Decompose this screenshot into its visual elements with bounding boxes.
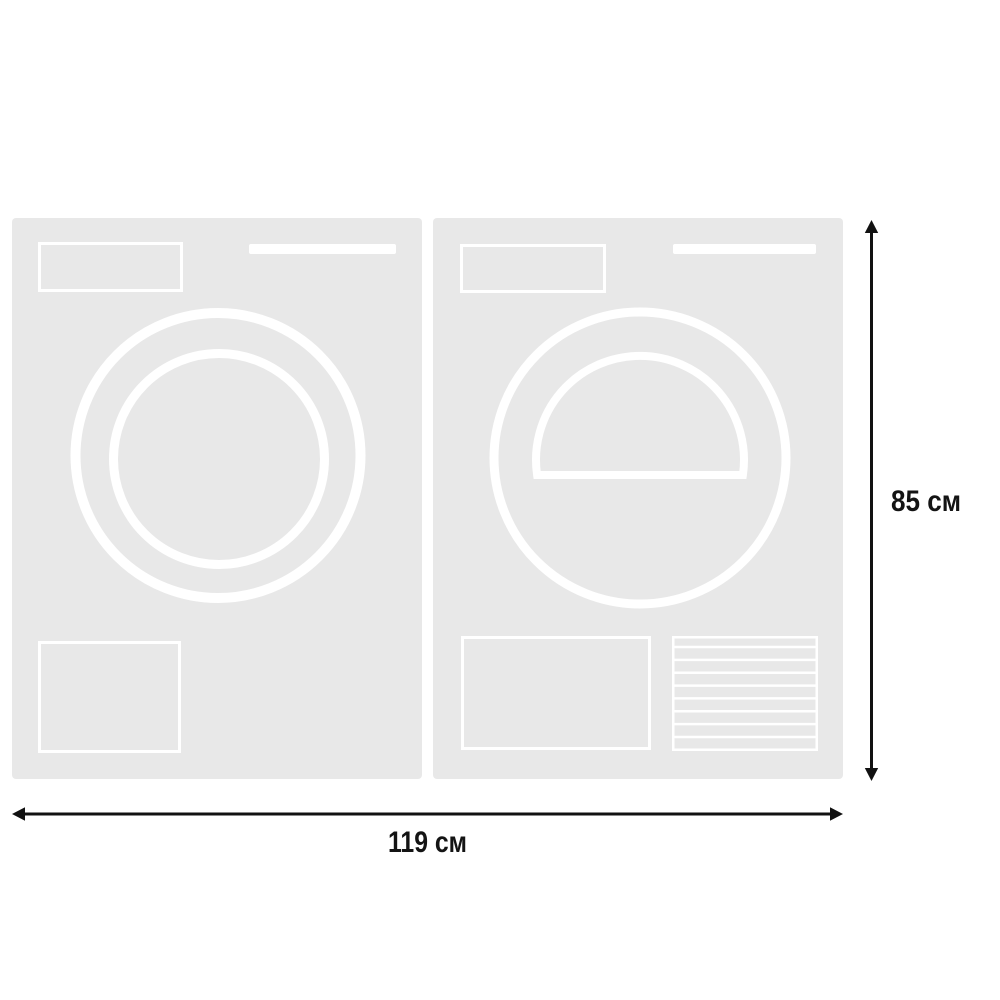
svg-text:119 см: 119 см [388, 826, 467, 859]
svg-text:85 см: 85 см [891, 485, 961, 518]
